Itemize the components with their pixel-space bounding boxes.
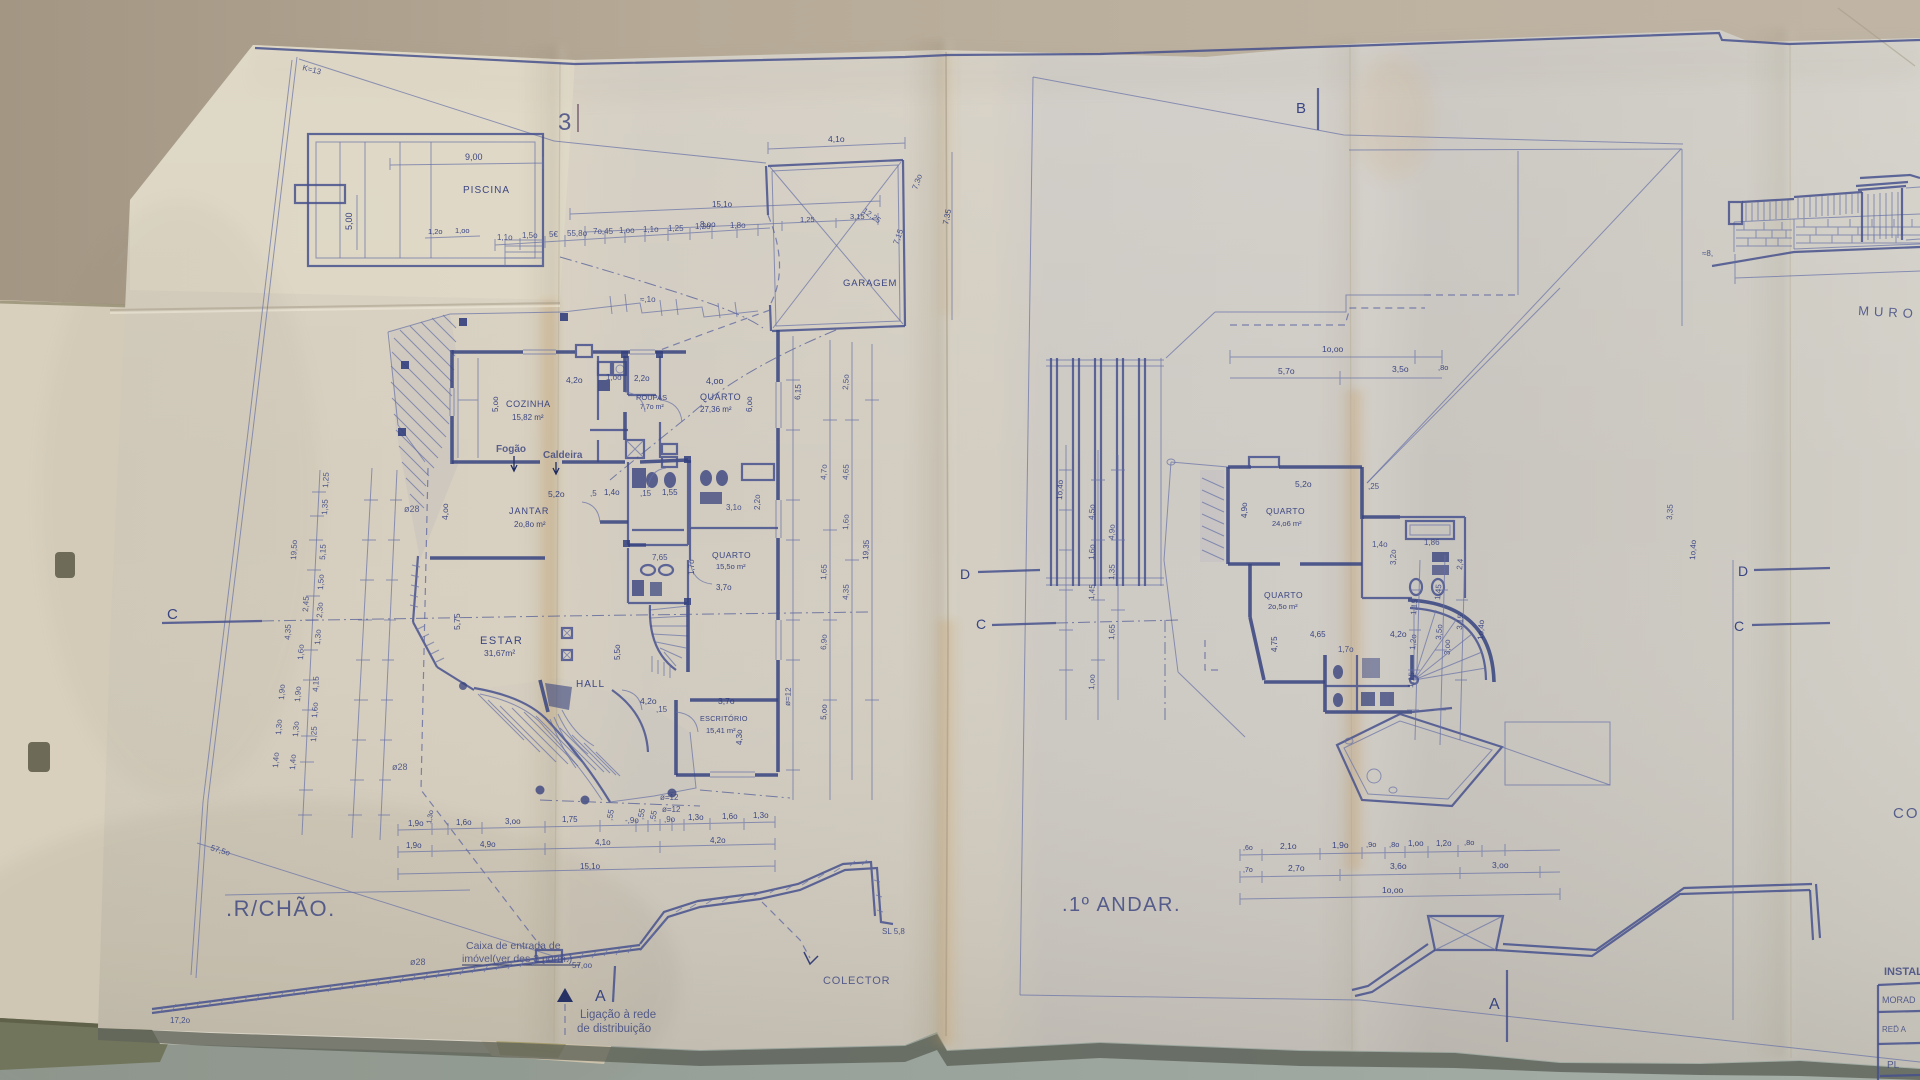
svg-text:5,75: 5,75 bbox=[452, 613, 462, 630]
svg-text:3,6o: 3,6o bbox=[1390, 861, 1407, 871]
svg-text:1o,4o: 1o,4o bbox=[1688, 539, 1698, 560]
svg-text:5,2o: 5,2o bbox=[548, 489, 565, 499]
svg-text:1o,4o: 1o,4o bbox=[1476, 619, 1486, 640]
svg-text:C: C bbox=[976, 616, 986, 632]
svg-text:15,1o: 15,1o bbox=[580, 862, 601, 871]
svg-text:3,5o: 3,5o bbox=[1434, 623, 1444, 640]
svg-text:ESTAR: ESTAR bbox=[480, 635, 523, 647]
svg-text:JANTAR: JANTAR bbox=[509, 506, 549, 516]
svg-text:15,41 m²: 15,41 m² bbox=[706, 726, 736, 735]
svg-text:ø28: ø28 bbox=[404, 504, 420, 514]
svg-text:24,o6 m²: 24,o6 m² bbox=[1272, 519, 1302, 528]
svg-text:15,1o: 15,1o bbox=[712, 200, 733, 209]
svg-text:PISCINA: PISCINA bbox=[463, 185, 510, 196]
svg-text:C: C bbox=[1734, 618, 1744, 634]
svg-text:3,7o: 3,7o bbox=[718, 696, 735, 706]
svg-text:1,oo: 1,oo bbox=[619, 226, 635, 235]
svg-text:4,35: 4,35 bbox=[841, 584, 851, 601]
svg-text:17,2o: 17,2o bbox=[170, 1016, 191, 1025]
svg-text:1,3o: 1,3o bbox=[291, 721, 301, 738]
svg-text:1,2o: 1,2o bbox=[428, 227, 443, 236]
svg-text:1o,oo: 1o,oo bbox=[1322, 344, 1344, 354]
svg-text:4,3o: 4,3o bbox=[735, 729, 744, 745]
svg-text:1,55: 1,55 bbox=[662, 488, 678, 497]
svg-text:1,3o: 1,3o bbox=[313, 629, 323, 646]
svg-text:31,67m²: 31,67m² bbox=[484, 648, 515, 658]
svg-text:2,2o: 2,2o bbox=[753, 494, 762, 510]
svg-text:1,4o: 1,4o bbox=[604, 488, 620, 497]
svg-text:,8o: ,8o bbox=[1438, 363, 1448, 372]
svg-text:4,7o: 4,7o bbox=[819, 464, 829, 481]
svg-text:6,9o: 6,9o bbox=[819, 634, 829, 651]
svg-text:QUARTO: QUARTO bbox=[712, 550, 751, 560]
svg-text:1,2o: 1,2o bbox=[695, 222, 711, 231]
svg-text:1,6o: 1,6o bbox=[1087, 544, 1097, 561]
svg-text:6,15: 6,15 bbox=[793, 384, 803, 401]
svg-text:3,2o: 3,2o bbox=[1389, 549, 1398, 565]
svg-text:Fogão: Fogão bbox=[496, 444, 526, 455]
svg-text:QUARTO: QUARTO bbox=[700, 392, 741, 402]
svg-text:3,15: 3,15 bbox=[1455, 613, 1465, 630]
svg-text:1,oo: 1,oo bbox=[455, 226, 470, 235]
svg-text:D: D bbox=[1738, 563, 1748, 579]
svg-text:A: A bbox=[1489, 996, 1500, 1013]
svg-text:RED̃ A: RED̃ A bbox=[1882, 1025, 1907, 1034]
svg-text:1,7o: 1,7o bbox=[687, 559, 696, 575]
svg-text:1,4o: 1,4o bbox=[288, 754, 298, 771]
svg-text:,7o: ,7o bbox=[1243, 867, 1253, 874]
svg-text:1,45: 1,45 bbox=[1087, 584, 1097, 601]
svg-text:1,5o: 1,5o bbox=[316, 574, 326, 591]
svg-text:2,3o: 2,3o bbox=[315, 602, 325, 619]
svg-text:≈,1o: ≈,1o bbox=[640, 295, 656, 304]
svg-text:2,1o: 2,1o bbox=[1280, 841, 1297, 851]
svg-text:COLECTOR: COLECTOR bbox=[823, 975, 890, 987]
svg-text:3,7o: 3,7o bbox=[716, 583, 732, 592]
svg-text:1,15: 1,15 bbox=[1406, 671, 1416, 688]
svg-text:PL: PL bbox=[1887, 1060, 1900, 1071]
svg-text:QUARTO: QUARTO bbox=[1266, 506, 1305, 516]
svg-text:1,3o: 1,3o bbox=[274, 719, 284, 736]
svg-text:9,00: 9,00 bbox=[465, 152, 483, 162]
svg-text:1,oo: 1,oo bbox=[1087, 674, 1097, 691]
svg-text:1,45: 1,45 bbox=[1433, 583, 1443, 600]
svg-text:ESCRITÓRIO: ESCRITÓRIO bbox=[700, 714, 748, 723]
svg-text:6,oo: 6,oo bbox=[745, 396, 754, 412]
svg-text:1,75: 1,75 bbox=[562, 815, 578, 824]
svg-text:7,65: 7,65 bbox=[652, 553, 668, 562]
svg-text:27,36 m²: 27,36 m² bbox=[700, 405, 732, 414]
svg-text:3,oo: 3,oo bbox=[505, 817, 521, 826]
svg-text:4,9o: 4,9o bbox=[1107, 524, 1117, 541]
svg-text:1,65: 1,65 bbox=[1107, 624, 1117, 641]
svg-text:7o,45: 7o,45 bbox=[593, 227, 614, 236]
svg-text:4,2o: 4,2o bbox=[640, 696, 657, 706]
svg-text:COZINHA: COZINHA bbox=[506, 399, 551, 409]
svg-text:4,35: 4,35 bbox=[283, 624, 293, 641]
svg-text:3,1o: 3,1o bbox=[726, 503, 742, 512]
svg-text:,15: ,15 bbox=[640, 489, 652, 498]
svg-text:1,9o: 1,9o bbox=[277, 684, 287, 701]
svg-text:,25: ,25 bbox=[1368, 482, 1380, 491]
svg-text:C: C bbox=[167, 606, 178, 623]
svg-text:3,oo: 3,oo bbox=[1443, 639, 1452, 655]
svg-text:1,6o: 1,6o bbox=[296, 644, 306, 661]
svg-text:2,7o: 2,7o bbox=[1288, 863, 1305, 873]
svg-text:,9o: ,9o bbox=[1366, 840, 1376, 849]
svg-text:4,2o: 4,2o bbox=[1390, 629, 1407, 639]
svg-text:3,oo: 3,oo bbox=[1492, 860, 1509, 870]
svg-text:4,15: 4,15 bbox=[311, 676, 321, 693]
svg-text:2o,5o m²: 2o,5o m² bbox=[1268, 602, 1298, 611]
svg-text:1o,4o: 1o,4o bbox=[1055, 479, 1065, 500]
svg-text:5,5o: 5,5o bbox=[613, 644, 622, 660]
svg-text:4,oo: 4,oo bbox=[440, 503, 450, 520]
svg-text:3: 3 bbox=[558, 109, 571, 136]
svg-text:,8o: ,8o bbox=[1389, 840, 1399, 849]
svg-text:1,8o: 1,8o bbox=[730, 221, 746, 230]
svg-text:19,5o: 19,5o bbox=[289, 539, 299, 560]
svg-text:1,3o: 1,3o bbox=[688, 813, 704, 822]
svg-text:1,15: 1,15 bbox=[1409, 598, 1419, 615]
svg-text:4,5o: 4,5o bbox=[1087, 504, 1097, 521]
svg-text:15,82 m²: 15,82 m² bbox=[512, 413, 544, 422]
svg-text:4,9o: 4,9o bbox=[1240, 502, 1249, 518]
svg-text:MORAD: MORAD bbox=[1882, 995, 1916, 1005]
svg-text:15,5o m²: 15,5o m² bbox=[716, 562, 746, 571]
svg-text:4,1o: 4,1o bbox=[828, 134, 845, 144]
svg-text:5,00: 5,00 bbox=[344, 212, 354, 230]
svg-text:1,7o: 1,7o bbox=[1338, 645, 1354, 654]
svg-text:5,15: 5,15 bbox=[318, 544, 328, 561]
svg-text:Caldeira: Caldeira bbox=[543, 450, 583, 461]
svg-text:CO: CO bbox=[1893, 805, 1920, 822]
svg-text:19,35: 19,35 bbox=[861, 539, 871, 560]
svg-text:1,6o: 1,6o bbox=[310, 702, 320, 719]
svg-text:1,9o: 1,9o bbox=[406, 841, 422, 850]
svg-text:3,35: 3,35 bbox=[1665, 504, 1675, 521]
svg-text:1,6o: 1,6o bbox=[722, 812, 738, 821]
svg-text:1,65: 1,65 bbox=[819, 564, 829, 581]
svg-text:1,oo: 1,oo bbox=[606, 373, 622, 382]
svg-text:2,4: 2,4 bbox=[1455, 558, 1465, 570]
svg-text:GARAGEM: GARAGEM bbox=[843, 278, 897, 289]
svg-text:1,1o: 1,1o bbox=[643, 225, 659, 234]
svg-text:,8o: ,8o bbox=[1464, 838, 1474, 847]
svg-text:2,2o: 2,2o bbox=[634, 374, 650, 383]
svg-text:3,5o: 3,5o bbox=[1392, 364, 1409, 374]
svg-text:1,86: 1,86 bbox=[1424, 538, 1440, 547]
svg-text:1,5o: 1,5o bbox=[522, 231, 538, 240]
svg-text:55,8o: 55,8o bbox=[567, 229, 588, 238]
svg-text:1,4o: 1,4o bbox=[1372, 540, 1388, 549]
svg-text:5€: 5€ bbox=[549, 230, 558, 239]
svg-text:MURO: MURO bbox=[1858, 303, 1918, 321]
svg-text:1,25: 1,25 bbox=[309, 726, 319, 743]
svg-text:5,7o: 5,7o bbox=[1278, 366, 1295, 376]
svg-text:ø28: ø28 bbox=[410, 957, 426, 967]
svg-text:1,6o: 1,6o bbox=[456, 818, 472, 827]
svg-text:Ligação à rede: Ligação à rede bbox=[580, 1009, 656, 1021]
svg-text:ø28: ø28 bbox=[392, 762, 408, 772]
svg-text:1,1o: 1,1o bbox=[497, 233, 513, 242]
svg-text:4,65: 4,65 bbox=[841, 464, 851, 481]
svg-text:,5: ,5 bbox=[590, 489, 597, 498]
svg-text:4,2o: 4,2o bbox=[566, 375, 583, 385]
svg-text:1,4o: 1,4o bbox=[271, 752, 281, 769]
svg-text:5,oo: 5,oo bbox=[491, 396, 500, 412]
svg-text:4,9o: 4,9o bbox=[480, 840, 496, 849]
svg-text:5,oo: 5,oo bbox=[819, 704, 829, 721]
svg-text:4,65: 4,65 bbox=[1310, 630, 1326, 639]
svg-text:1o,oo: 1o,oo bbox=[1382, 885, 1404, 895]
svg-text:.1º ANDAR.: .1º ANDAR. bbox=[1062, 894, 1181, 916]
svg-text:≈8,: ≈8, bbox=[1702, 249, 1713, 258]
svg-text:de distribuição: de distribuição bbox=[577, 1023, 651, 1035]
svg-text:1,35: 1,35 bbox=[320, 499, 330, 516]
svg-text:INSTAL: INSTAL bbox=[1884, 966, 1920, 978]
svg-text:4,oo: 4,oo bbox=[706, 376, 724, 386]
svg-text:1,9o: 1,9o bbox=[293, 686, 303, 703]
svg-text:A: A bbox=[595, 988, 606, 1005]
svg-text:2,5o: 2,5o bbox=[841, 374, 851, 391]
svg-text:1,9o: 1,9o bbox=[1332, 840, 1349, 850]
svg-text:1,3o: 1,3o bbox=[753, 811, 769, 820]
svg-text:1,2o: 1,2o bbox=[1436, 839, 1452, 848]
svg-text:,6o: ,6o bbox=[1243, 845, 1253, 852]
svg-text:4,1o: 4,1o bbox=[595, 838, 611, 847]
svg-text:2,45: 2,45 bbox=[301, 596, 311, 613]
svg-text:SL 5,8: SL 5,8 bbox=[882, 927, 905, 936]
svg-text:1,9o: 1,9o bbox=[408, 819, 424, 828]
svg-text:57,oo: 57,oo bbox=[572, 961, 593, 970]
svg-text:1,2o: 1,2o bbox=[1408, 633, 1418, 650]
svg-text:,15: ,15 bbox=[656, 705, 668, 714]
svg-text:QUARTO: QUARTO bbox=[1264, 590, 1303, 600]
svg-text:1,25: 1,25 bbox=[668, 224, 684, 233]
svg-text:1,35: 1,35 bbox=[1107, 564, 1117, 581]
svg-text:ø=12: ø=12 bbox=[660, 793, 679, 802]
svg-text:D: D bbox=[960, 566, 970, 582]
svg-text:1,25: 1,25 bbox=[321, 472, 331, 489]
svg-text:2o,8o m²: 2o,8o m² bbox=[514, 520, 546, 529]
svg-text:5,2o: 5,2o bbox=[1295, 479, 1312, 489]
svg-text:B: B bbox=[1296, 100, 1306, 117]
svg-text:4,75: 4,75 bbox=[1270, 636, 1279, 652]
svg-text:,9o: ,9o bbox=[664, 815, 676, 824]
svg-text:1,oo: 1,oo bbox=[1408, 839, 1424, 848]
svg-text:ø=12: ø=12 bbox=[662, 805, 681, 814]
svg-text:ø=12: ø=12 bbox=[783, 687, 793, 706]
svg-text:.R/CHÃO.: .R/CHÃO. bbox=[226, 896, 336, 921]
svg-text:1,6o: 1,6o bbox=[841, 514, 851, 531]
svg-text:4,2o: 4,2o bbox=[710, 836, 726, 845]
